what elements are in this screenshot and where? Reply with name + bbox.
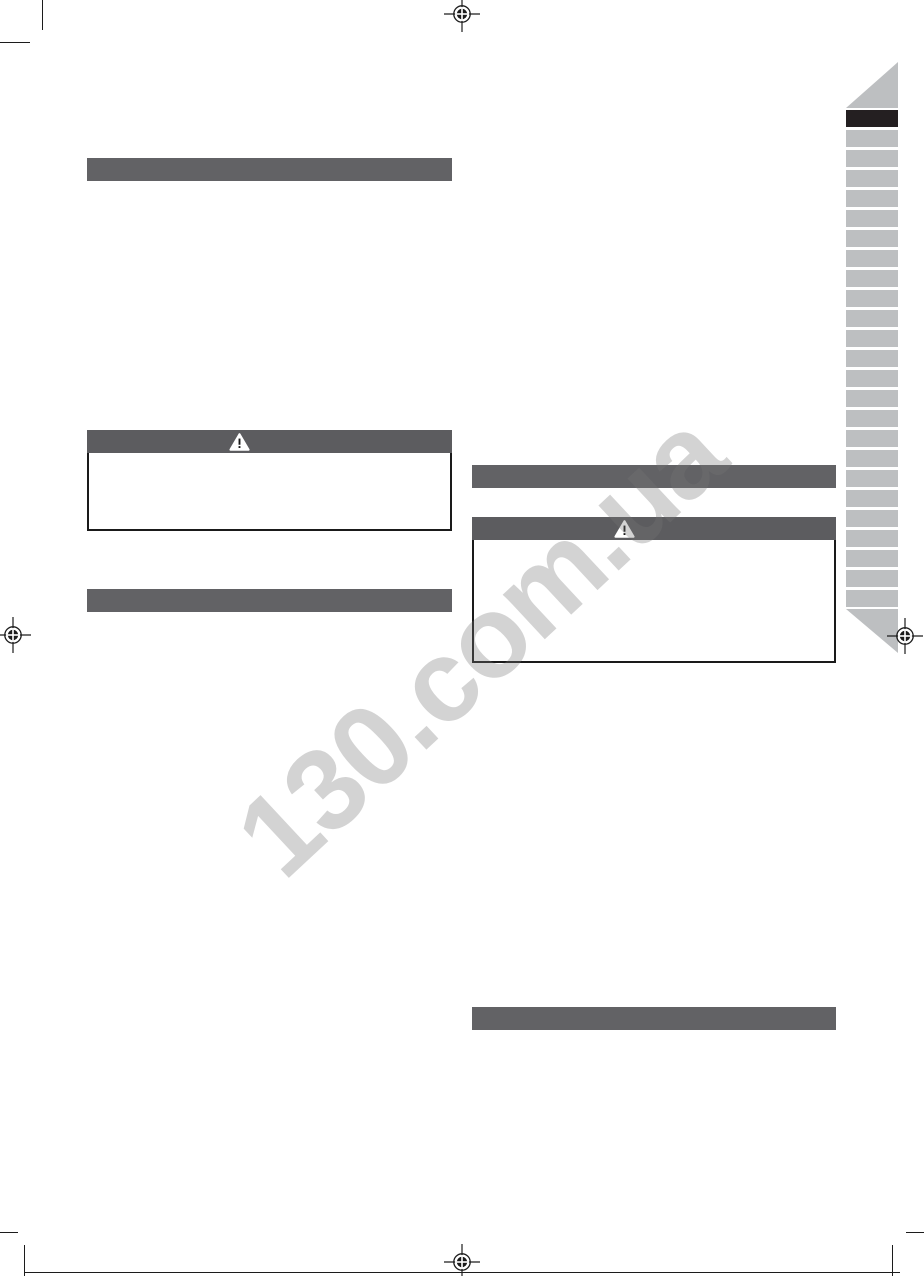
warning-box	[472, 517, 836, 663]
warning-box-header	[472, 517, 836, 540]
language-tab-selected	[846, 110, 898, 128]
language-tab	[846, 150, 898, 168]
registration-mark-icon	[0, 617, 31, 653]
crop-mark-bottom-left-horizontal	[0, 1232, 18, 1233]
language-tab	[846, 170, 898, 188]
language-tab	[846, 190, 898, 208]
warning-box-header	[87, 430, 452, 453]
registration-mark-icon	[444, 1244, 480, 1276]
sidebar-top-triangle	[846, 62, 898, 108]
warning-triangle-icon	[229, 433, 250, 451]
language-tab	[846, 470, 898, 488]
language-tab	[846, 410, 898, 428]
manual-page: 130.com.ua	[0, 0, 924, 1276]
language-tab	[846, 210, 898, 228]
crop-mark-bottom-right-horizontal	[906, 1232, 924, 1233]
registration-mark-icon	[444, 0, 480, 32]
language-tab	[846, 390, 898, 408]
warning-box	[87, 430, 452, 531]
language-tab	[846, 350, 898, 368]
language-tab	[846, 230, 898, 248]
language-tab	[846, 510, 898, 528]
section-heading-bar	[472, 465, 836, 488]
warning-box-body	[472, 540, 836, 663]
crop-mark-top-left-horizontal	[0, 42, 30, 43]
language-tab	[846, 310, 898, 328]
language-tab	[846, 570, 898, 588]
crop-mark-top-left-vertical	[42, 0, 43, 30]
language-index-sidebar	[846, 0, 898, 700]
language-tab	[846, 450, 898, 468]
section-heading-bar	[472, 1007, 836, 1030]
language-tab	[846, 370, 898, 388]
language-tab	[846, 130, 898, 148]
warning-triangle-icon	[614, 520, 635, 538]
language-tab	[846, 550, 898, 568]
section-heading-bar	[87, 158, 452, 181]
language-tab	[846, 590, 898, 608]
language-tab	[846, 530, 898, 548]
registration-mark-icon	[887, 618, 923, 654]
language-tab	[846, 270, 898, 288]
language-tab	[846, 290, 898, 308]
section-heading-bar	[87, 589, 452, 612]
language-tab	[846, 430, 898, 448]
language-tab	[846, 490, 898, 508]
language-tab	[846, 250, 898, 268]
language-tab	[846, 330, 898, 348]
warning-box-body	[87, 453, 452, 531]
